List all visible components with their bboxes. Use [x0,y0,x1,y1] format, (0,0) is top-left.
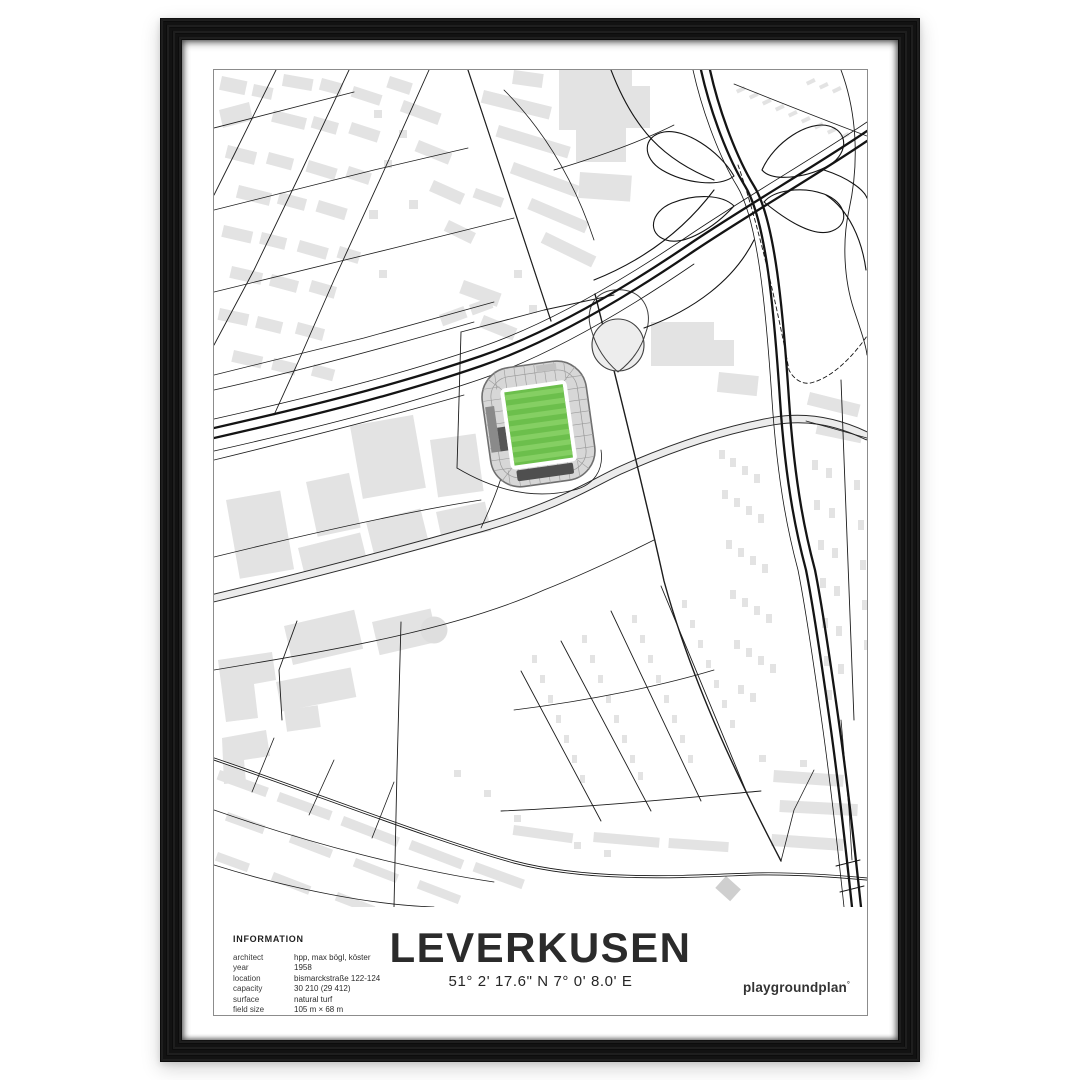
poster-print: INFORMATION architecthpp, max bögl, köst… [213,69,868,1016]
brand-text: playgroundplan [743,980,847,995]
picture-frame: INFORMATION architecthpp, max bögl, köst… [160,18,920,1062]
frame-edge-right [898,18,920,1062]
mat-board: INFORMATION architecthpp, max bögl, köst… [182,40,898,1040]
frame-edge-bottom [160,1040,920,1062]
stadium [478,357,599,490]
brand-degree-mark: ° [847,982,850,989]
city-map-svg [214,70,867,907]
frame-edge-left [160,18,182,1062]
poster-scene: INFORMATION architecthpp, max bögl, köst… [0,0,1080,1080]
poster-title: LEVERKUSEN [214,926,867,970]
frame-edge-top [160,18,920,40]
city-map [214,70,867,907]
info-row-field-size: field size105 m × 68 m [233,1005,380,1015]
info-row-surface: surfacenatural turf [233,995,380,1005]
pitch [504,384,573,465]
brand-logo: playgroundplan° [743,980,850,995]
